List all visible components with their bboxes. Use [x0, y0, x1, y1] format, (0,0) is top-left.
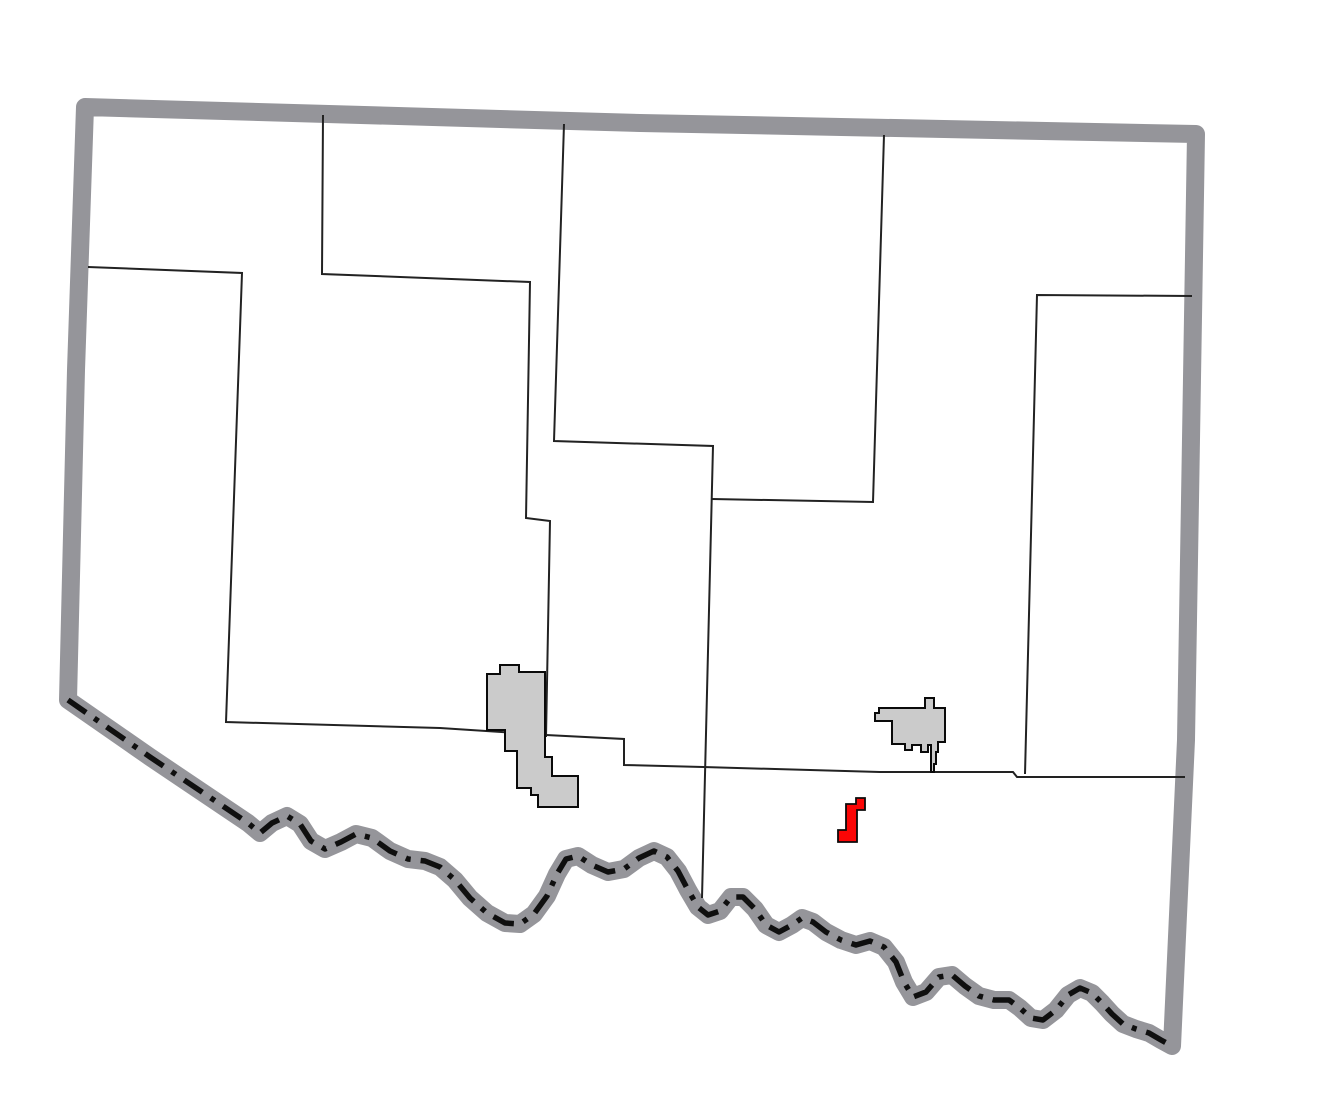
- county-border: [68, 107, 1196, 1046]
- county-locator-map: [0, 0, 1320, 1110]
- map-canvas: [0, 0, 1320, 1110]
